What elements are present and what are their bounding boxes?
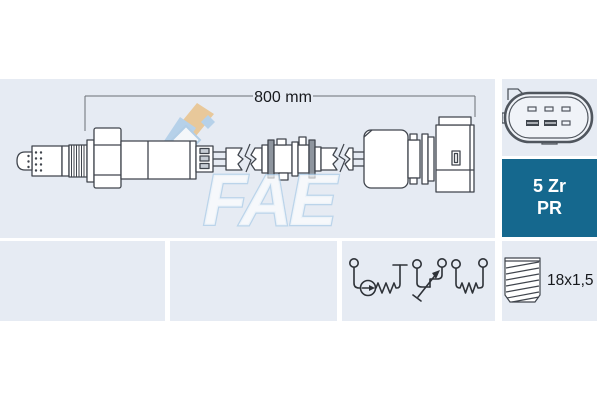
fae-watermark-text: FAE <box>203 161 339 238</box>
connector-housing <box>364 117 474 192</box>
thread-spec-panel: 18x1,5 <box>502 241 597 321</box>
spec-code-box: 5 Zr PR <box>502 159 597 237</box>
product-image-page: { "main_panel": { "dimension_label": "80… <box>0 0 600 400</box>
empty-panel-1 <box>0 241 165 321</box>
spec-code-line2: PR <box>537 198 562 220</box>
sensor-drawing-panel: 800 mm <box>0 79 495 238</box>
empty-panel-2 <box>170 241 337 321</box>
lambda-sensor-drawing: 800 mm <box>0 79 495 238</box>
wiring-schematic-icon <box>342 241 495 321</box>
spec-code-line1: 5 Zr <box>533 176 566 198</box>
connector-face-icon <box>502 79 597 156</box>
wiring-schematic-panel <box>342 241 495 321</box>
connector-face-panel <box>502 79 597 156</box>
thread-symbol-icon: 18x1,5 <box>502 241 597 321</box>
thread-size-label: 18x1,5 <box>547 272 594 289</box>
dimension-label: 800 mm <box>254 89 312 106</box>
